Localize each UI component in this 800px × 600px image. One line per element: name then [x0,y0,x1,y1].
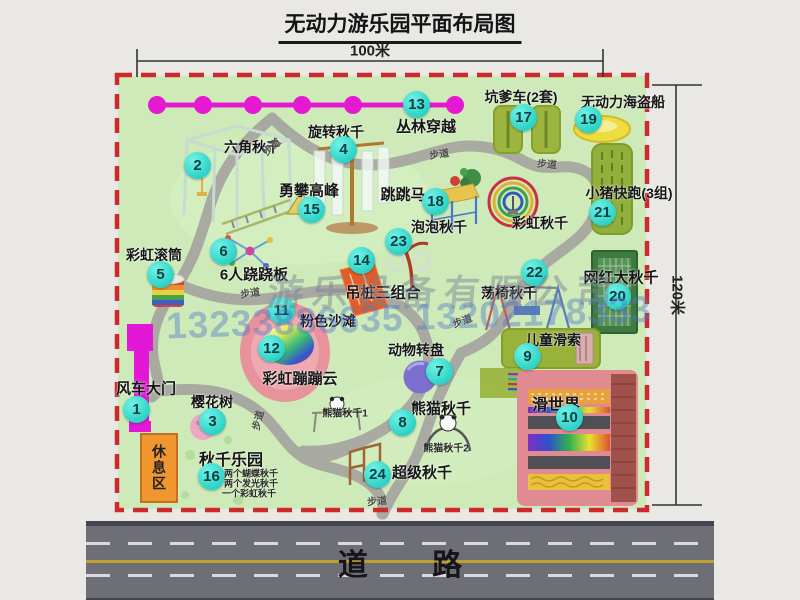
pirate-ship-icon [574,116,630,142]
page-title: 无动力游乐园平面布局图 [279,8,522,44]
piggy-run-icon [592,144,632,234]
height-dimension-label: 120米 [668,275,689,315]
rest-area-box: 休息区 [140,433,178,503]
width-dimension-label: 100米 [350,40,390,61]
slide-world-icon [517,370,638,506]
park-plan-poster: 无动力游乐园平面布局图 100米 120米 [0,0,800,600]
rainbow-roller-icon [152,274,184,307]
cherry-tree-icon [190,414,216,440]
animal-carousel-icon [404,361,437,394]
rest-area-label: 休息区 [149,444,169,492]
bounce-cloud-icon [240,302,330,402]
big-swing-net-icon [592,251,637,333]
